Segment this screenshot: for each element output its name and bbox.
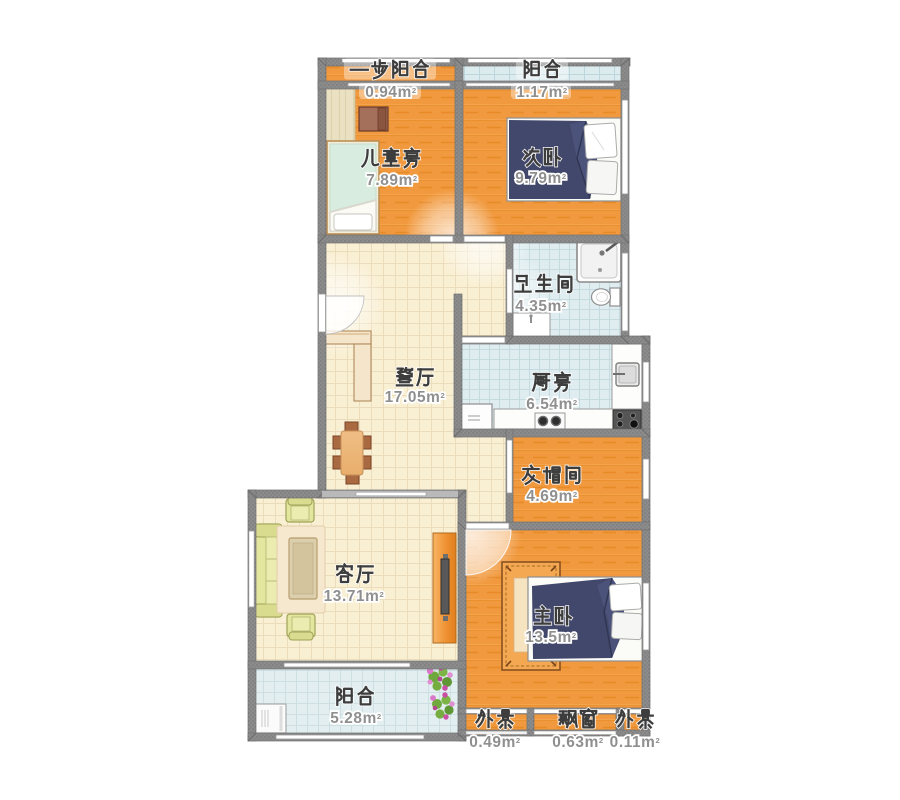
svg-text:5.28m2: 5.28m2 — [330, 710, 382, 727]
svg-text:1.17m2: 1.17m2 — [516, 84, 568, 101]
svg-text:0.11m2: 0.11m2 — [610, 734, 661, 751]
svg-text:4.35m2: 4.35m2 — [515, 298, 567, 315]
svg-text:4.69m2: 4.69m2 — [526, 488, 578, 505]
svg-text:0.94m2: 0.94m2 — [365, 84, 417, 101]
svg-text:13.5m2: 13.5m2 — [525, 629, 577, 646]
svg-text:0.63m2: 0.63m2 — [552, 734, 604, 751]
svg-text:6.54m2: 6.54m2 — [526, 396, 578, 413]
svg-text:17.05m2: 17.05m2 — [385, 389, 446, 406]
svg-text:7.89m2: 7.89m2 — [366, 172, 418, 189]
svg-text:13.71m2: 13.71m2 — [324, 588, 385, 605]
svg-text:0.49m2: 0.49m2 — [469, 734, 521, 751]
svg-text:9.79m2: 9.79m2 — [515, 170, 567, 187]
